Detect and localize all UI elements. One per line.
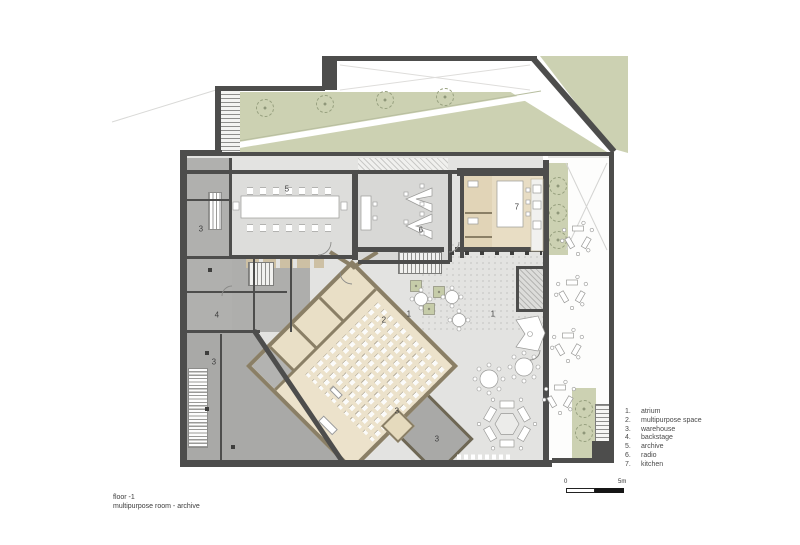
room-label-multipurpose: 2 — [382, 316, 387, 325]
conference-table-group — [233, 191, 347, 228]
title-block: floor -1 multipurpose room - archive — [113, 493, 200, 511]
room-label-warehouse: 3 — [395, 407, 400, 416]
legend-item: 4.backstage — [625, 434, 702, 443]
legend-number: 3. — [625, 426, 641, 435]
room-label-radio: 6 — [419, 226, 424, 235]
legend-label: kitchen — [641, 461, 663, 470]
floor-subtitle: multipurpose room - archive — [113, 502, 200, 511]
room-label-warehouse: 3 — [435, 435, 440, 444]
legend-number: 1. — [625, 408, 641, 417]
legend-number: 7. — [625, 461, 641, 470]
room-label-warehouse: 3 — [199, 225, 204, 234]
hexagon-table-group — [477, 397, 536, 450]
room-label-kitchen: 7 — [515, 203, 520, 212]
legend-number: 6. — [625, 452, 641, 461]
legend-label: warehouse — [641, 426, 675, 435]
legend-label: archive — [641, 443, 664, 452]
legend-item: 5.archive — [625, 443, 702, 452]
door-swings-group — [222, 242, 540, 360]
scale-bar: 0 5m — [560, 478, 630, 496]
legend-number: 4. — [625, 434, 641, 443]
floor-plan-canvas: 3 5 6 7 4 1 1 2 3 3 3 1.atrium 2.multipu… — [0, 0, 800, 545]
legend-label: atrium — [641, 408, 660, 417]
legend-number: 5. — [625, 443, 641, 452]
room-label-atrium: 1 — [407, 310, 412, 319]
kitchen-fittings-group — [468, 179, 543, 251]
legend-item: 6.radio — [625, 452, 702, 461]
room-label-warehouse: 3 — [212, 358, 217, 367]
scale-start-label: 0 — [564, 479, 567, 485]
room-label-archive: 5 — [285, 185, 290, 194]
legend-item: 3.warehouse — [625, 426, 702, 435]
legend: 1.atrium 2.multipurpose space 3.warehous… — [625, 408, 702, 470]
legend-label: backstage — [641, 434, 673, 443]
legend-label: multipurpose space — [641, 417, 702, 426]
scale-segment-black — [595, 488, 624, 493]
floor-title: floor -1 — [113, 493, 200, 502]
room-label-atrium: 1 — [491, 310, 496, 319]
scale-end-label: 5m — [618, 479, 626, 485]
scale-segment-white — [566, 488, 595, 493]
room-label-backstage: 4 — [215, 311, 220, 320]
legend-item: 1.atrium — [625, 408, 702, 417]
legend-number: 2. — [625, 417, 641, 426]
legend-item: 2.multipurpose space — [625, 417, 702, 426]
legend-label: radio — [641, 452, 657, 461]
terrace-furniture-group — [542, 221, 594, 415]
legend-item: 7.kitchen — [625, 461, 702, 470]
